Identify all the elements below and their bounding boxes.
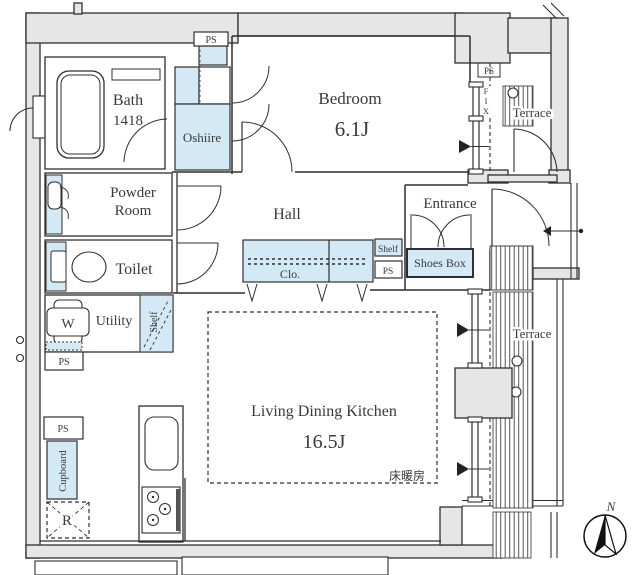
entrance-door-frames <box>411 214 471 248</box>
terrace-right-label: Terrace <box>513 326 552 341</box>
bedroom-window-cap-bot <box>469 169 483 174</box>
toilet-door-arc <box>177 243 218 284</box>
ldk-window-2-cap-bot <box>468 497 482 502</box>
cupboard-label: Cupboard <box>58 450 69 492</box>
oshiire-top-duct <box>199 46 227 65</box>
shelf-utility-label: Shelf <box>149 311 160 333</box>
wall-left <box>26 13 40 558</box>
wall-bottom-step <box>440 507 462 545</box>
powder-room-outline <box>45 173 172 236</box>
ldk-window-1 <box>472 292 478 366</box>
stove-front-bar <box>176 489 180 531</box>
bath-counter <box>112 69 160 80</box>
ps-hall-label: PS <box>383 267 394 277</box>
wall-bottom-band <box>26 545 502 558</box>
ldk-window-1-cap-bot <box>468 363 482 368</box>
shelf-hall-label: Shelf <box>378 244 399 255</box>
meter-circle-2 <box>17 355 24 362</box>
ps-top-label: PS <box>205 35 216 46</box>
terrace-drain-1 <box>512 356 522 366</box>
entrance-closet-arc-right <box>438 215 470 247</box>
wall-pier <box>455 368 512 418</box>
ps-left-upper-label: PS <box>58 357 69 368</box>
wall-top-right-chunk <box>455 13 510 63</box>
bedroom-label: Bedroom <box>318 89 381 108</box>
oshiire-upper-left <box>175 67 199 104</box>
entry-arrow-head <box>543 226 551 236</box>
bedroom-size-label: 6.1J <box>335 117 369 141</box>
bedroom-window-cap-mid <box>469 116 483 121</box>
closet-label: Clo. <box>280 267 300 281</box>
floor-heating-dashed-rect <box>208 312 437 483</box>
ldk-window-2-marker <box>457 462 469 476</box>
bedroom-door-arc <box>242 122 292 172</box>
roof-diagonal <box>543 3 564 18</box>
hall-fixtures <box>173 185 583 301</box>
bedroom-window-marker <box>459 140 471 153</box>
toilet-label: Toilet <box>115 261 153 278</box>
oshiire-closet <box>175 32 230 170</box>
terrace-top-sill <box>488 175 557 182</box>
toilet-bowl-icon <box>72 252 106 282</box>
outside-step <box>533 268 579 279</box>
left-fixtures <box>44 352 89 538</box>
bath-room <box>45 57 167 169</box>
toilet-tank-icon <box>51 251 66 282</box>
fix-window-label: FIX <box>481 86 491 116</box>
bath-label: Bath <box>113 92 143 109</box>
terrace-lower-hatch <box>493 512 531 558</box>
lower-neighbor-left <box>35 561 177 575</box>
kitchen <box>40 406 441 542</box>
floor-plan: PS Bath 1418 Oshiire Bedroom 6.1J PS Ter… <box>0 0 640 575</box>
front-door-arc <box>492 189 549 246</box>
oshiire-label: Oshiire <box>183 130 222 145</box>
terrace-top-label: Terrace <box>513 105 552 120</box>
oshiire-door-arc-1 <box>232 66 269 103</box>
bedroom-window <box>473 85 479 173</box>
bath-size-label: 1418 <box>113 113 143 129</box>
compass <box>584 515 626 557</box>
floor-heating-label: 床暖房 <box>389 468 425 483</box>
entry-arrow-dot <box>579 229 583 233</box>
balcony-rail <box>557 279 563 506</box>
ldk-zone <box>208 312 437 483</box>
floor-plan-drawing: PS Bath 1418 Oshiire Bedroom 6.1J PS Ter… <box>0 0 640 575</box>
meter-circle-1 <box>17 337 24 344</box>
utility-label: Utility <box>96 314 133 329</box>
windows-terraces <box>455 63 557 558</box>
ps-left-lower-label: PS <box>57 424 68 435</box>
shoes-box-label: Shoes Box <box>414 256 466 270</box>
lower-neighbor-right <box>182 557 388 575</box>
ldk-window-1-cap-top <box>468 289 482 294</box>
ps-corner-label: PS <box>484 66 494 76</box>
ldk-label: Living Dining Kitchen <box>251 403 397 420</box>
wall-top-stub <box>74 3 82 14</box>
ldk-window-2 <box>472 420 478 500</box>
washer-pan-strip <box>46 342 82 350</box>
closet-fold-door-marks <box>247 284 367 301</box>
entrance-closet-arc-left <box>412 215 444 247</box>
oshiire-upper-right <box>199 67 230 104</box>
porch-hatch <box>490 246 533 290</box>
compass-north-label: N <box>606 499 617 514</box>
bathtub-icon <box>57 71 104 158</box>
powder-door-arc <box>177 186 221 230</box>
washer-label: W <box>61 317 75 332</box>
wall-top-mid <box>238 13 462 36</box>
closet-box <box>243 240 373 282</box>
entrance-label: Entrance <box>423 196 477 212</box>
powder-room-label-2: Room <box>115 203 152 219</box>
ldk-size-label: 16.5J <box>303 431 346 453</box>
powder-room-label-1: Powder <box>110 185 156 201</box>
sink-icon <box>48 182 61 209</box>
refrigerator-label: R <box>62 513 72 529</box>
ldk-window-2-cap-top <box>468 417 482 422</box>
wall-terrace-top-band <box>508 18 557 53</box>
terrace-top-drain <box>508 88 518 98</box>
balcony-rail-lower <box>551 512 557 558</box>
hall-label: Hall <box>273 206 301 223</box>
ldk-window-1-marker <box>457 323 469 337</box>
